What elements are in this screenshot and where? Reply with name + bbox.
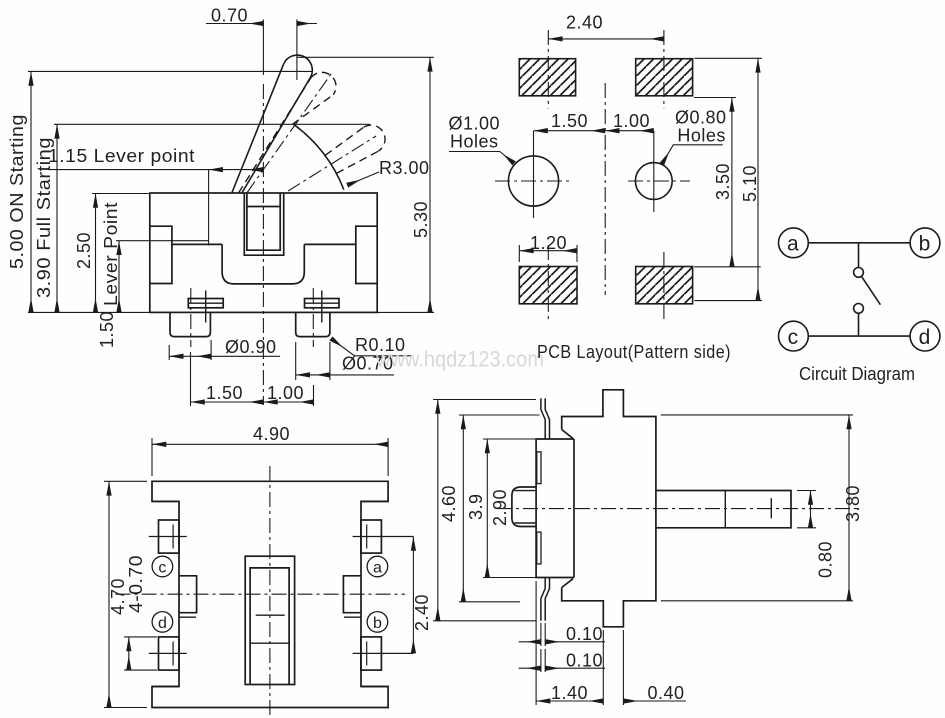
svg-text:1.20: 1.20 [530,233,567,253]
svg-text:d: d [919,326,931,349]
svg-text:2.40: 2.40 [566,13,603,33]
svg-text:1.00: 1.00 [613,111,650,131]
svg-text:4.90: 4.90 [253,424,290,444]
svg-text:1.00: 1.00 [267,383,304,403]
svg-text:a: a [787,233,799,256]
svg-text:d: d [158,615,167,632]
svg-text:1.50: 1.50 [551,111,588,131]
svg-text:Holes: Holes [450,131,499,151]
svg-text:Ø0.90: Ø0.90 [225,337,277,357]
svg-text:4.70: 4.70 [108,578,128,615]
svg-text:1.50: 1.50 [97,311,117,348]
svg-text:3.9: 3.9 [466,493,486,520]
svg-text:0.10: 0.10 [566,624,603,644]
svg-text:0.40: 0.40 [648,683,685,703]
svg-text:1.15 Lever point: 1.15 Lever point [48,146,195,166]
svg-text:5.00 ON Starting: 5.00 ON Starting [7,114,27,269]
svg-text:R3.00: R3.00 [379,158,430,178]
svg-text:2.90: 2.90 [490,489,510,526]
svg-text:2.50: 2.50 [74,232,94,269]
svg-text:Circuit Diagram: Circuit Diagram [799,364,915,384]
svg-text:Holes: Holes [677,125,726,145]
svg-text:3.50: 3.50 [713,163,733,200]
svg-text:Ø1.00: Ø1.00 [449,113,501,133]
svg-text:c: c [158,560,166,577]
svg-text:0.10: 0.10 [566,651,603,671]
svg-text:a: a [373,560,382,577]
svg-text:0.70: 0.70 [211,6,248,26]
svg-text:0.80: 0.80 [816,541,836,578]
svg-text:www.hqdz123.com: www.hqdz123.com [375,347,544,372]
svg-text:5.30: 5.30 [411,201,431,238]
svg-text:3.80: 3.80 [843,485,863,522]
svg-text:4.60: 4.60 [439,485,459,522]
svg-text:1.40: 1.40 [551,683,588,703]
svg-text:Ø0.80: Ø0.80 [675,107,727,127]
svg-text:4-0.70: 4-0.70 [126,555,146,613]
svg-text:5.10: 5.10 [740,165,760,202]
svg-text:2.40: 2.40 [412,594,432,631]
svg-text:c: c [788,326,799,349]
svg-text:1.50: 1.50 [206,383,243,403]
svg-text:Lever Point: Lever Point [101,202,121,306]
svg-text:b: b [373,615,382,632]
svg-text:b: b [919,233,931,256]
svg-text:PCB Layout(Pattern side): PCB Layout(Pattern side) [537,342,731,362]
